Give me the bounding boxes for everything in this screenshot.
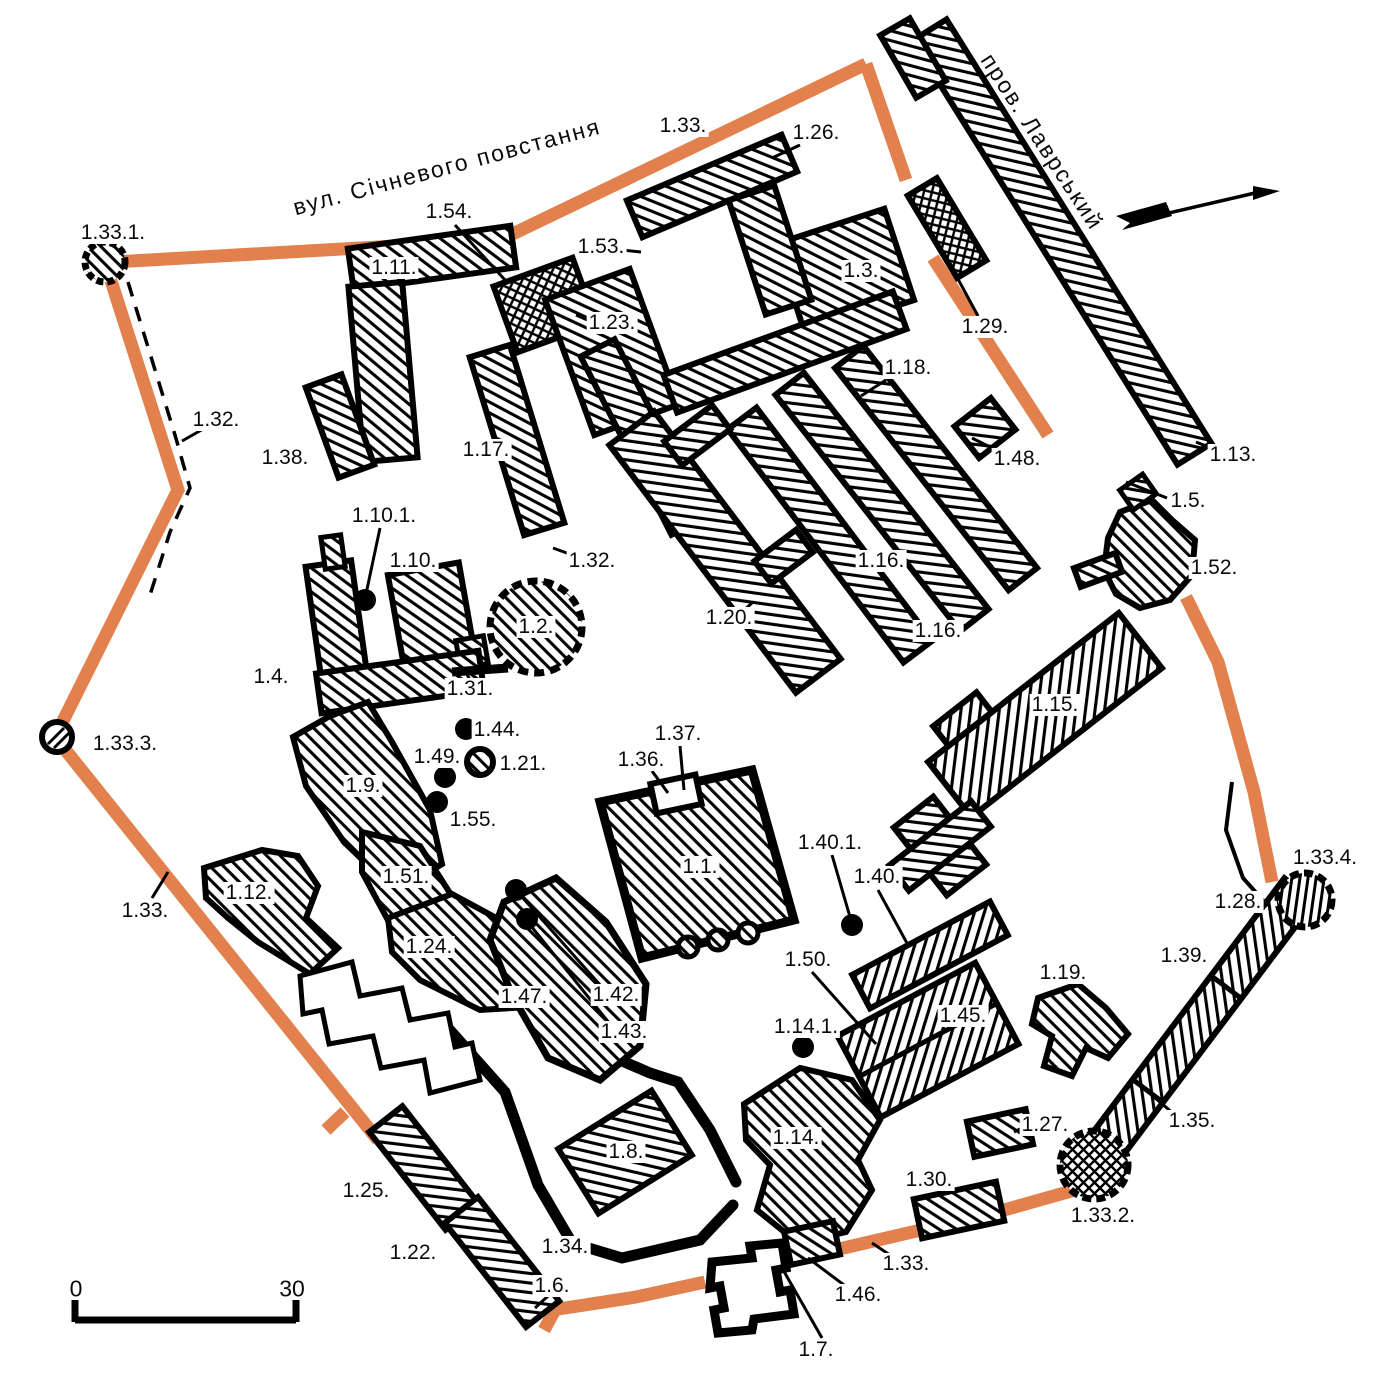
map-label-1-46: 1.46. (833, 1284, 884, 1306)
map-label-1-40-1: 1.40.1. (796, 832, 864, 854)
map-label-1-51: 1.51. (381, 866, 432, 888)
map-label-1-45: 1.45. (938, 1005, 989, 1027)
map-label-1-14-1: 1.14.1. (772, 1016, 840, 1038)
map-label-1-55: 1.55. (448, 809, 499, 831)
map-label-1-33: 1.33. (658, 115, 709, 137)
map-label-1-10-1: 1.10.1. (350, 505, 418, 527)
map-label-1-7: 1.7. (796, 1339, 835, 1361)
point-marker-1-42 (505, 879, 527, 901)
map-label-1-54: 1.54. (424, 201, 475, 223)
leader-line-1-40-1 (832, 855, 850, 917)
map-label-1-42: 1.42. (591, 984, 642, 1006)
map-label-1-15: 1.15. (1030, 694, 1081, 716)
map-label-1-27: 1.27. (1020, 1114, 1071, 1136)
map-label-1-14: 1.14. (771, 1127, 822, 1149)
map-label-1-16: 1.16. (913, 620, 964, 642)
building-1.29 (908, 178, 987, 278)
map-label-1-28: 1.28. (1213, 891, 1264, 913)
map-label-1-47: 1.47. (499, 986, 550, 1008)
map-label-1-5: 1.5. (1168, 490, 1207, 512)
scale-start-label: 0 (70, 1276, 83, 1303)
wall-south-west (552, 1282, 705, 1310)
map-label-1-33-2: 1.33.2. (1069, 1205, 1137, 1227)
map-label-1-9: 1.9. (343, 775, 382, 797)
map-label-1-19: 1.19. (1038, 962, 1089, 984)
map-label-1-44: 1.44. (472, 719, 523, 741)
map-label-1-53: 1.53. (576, 236, 627, 258)
map-label-1-32: 1.32. (567, 550, 618, 572)
point-marker-1-49 (434, 766, 456, 788)
map-label-1-21: 1.21. (498, 753, 549, 775)
map-label-1-33: 1.33. (881, 1253, 932, 1275)
map-label-1-33-1: 1.33.1. (79, 222, 147, 244)
map-label-1-31: 1.31. (445, 678, 496, 700)
map-label-1-39: 1.39. (1159, 945, 1210, 967)
map-label-1-24: 1.24. (404, 936, 455, 958)
map-label-1-25: 1.25. (341, 1180, 392, 1202)
site-plan-canvas (0, 0, 1378, 1393)
map-label-1-23: 1.23. (587, 312, 638, 334)
map-label-1-49: 1.49. (412, 746, 463, 768)
building-1.19 (1032, 984, 1128, 1076)
building-1.47 (490, 878, 646, 1080)
wall-east-upper (866, 64, 906, 180)
tower-1.33.1 (85, 242, 125, 282)
map-label-1-12: 1.12. (224, 882, 275, 904)
map-label-1-33-3: 1.33.3. (91, 733, 159, 755)
point-marker-1-10-1 (354, 589, 376, 611)
map-label-1-38: 1.38. (260, 447, 311, 469)
map-label-1-52: 1.52. (1189, 557, 1240, 579)
map-label-1-10: 1.10. (388, 550, 439, 572)
point-marker-1-40-1 (841, 914, 863, 936)
map-label-1-33: 1.33. (120, 900, 171, 922)
tower-1.33.4 (1278, 873, 1332, 927)
map-label-1-2: 1.2. (516, 616, 555, 638)
point-marker-1-14-1 (792, 1036, 814, 1058)
map-label-1-48: 1.48. (992, 448, 1043, 470)
map-label-1-43: 1.43. (599, 1021, 650, 1043)
map-label-1-36: 1.36. (616, 749, 667, 771)
map-label-1-13: 1.13. (1208, 444, 1259, 466)
map-label-1-17: 1.17. (461, 439, 512, 461)
point-marker-1-43 (516, 908, 538, 930)
map-label-1-8: 1.8. (606, 1141, 645, 1163)
rotunda-marker-1-21 (467, 749, 493, 775)
map-label-1-18: 1.18. (883, 357, 934, 379)
map-label-1-1: 1.1. (680, 856, 719, 878)
tower-1.33.3 (42, 722, 72, 752)
map-label-1-6: 1.6. (532, 1275, 571, 1297)
building-1.46 (784, 1221, 840, 1265)
map-label-1-34: 1.34. (540, 1236, 591, 1258)
map-label-1-4: 1.4. (251, 666, 290, 688)
map-label-1-30: 1.30. (904, 1169, 955, 1191)
scale-end-label: 30 (279, 1276, 305, 1303)
scale-bar (75, 1300, 296, 1322)
building-1.4-stub (321, 535, 345, 569)
tower-1.33.2 (1060, 1131, 1128, 1199)
gate-church-1.7 (710, 1243, 794, 1333)
map-label-1-33-4: 1.33.4. (1291, 847, 1359, 869)
map-label-1-11: 1.11. (369, 257, 418, 279)
map-label-1-16: 1.16. (856, 550, 907, 572)
building-1.22 (445, 1197, 559, 1327)
leader-line-1-10-1 (366, 528, 380, 594)
leader-line-1-40 (878, 890, 908, 945)
map-label-1-37: 1.37. (653, 723, 704, 745)
map-label-1-35: 1.35. (1167, 1110, 1218, 1132)
site-plan: вул. Січневого повстанняпров. Лаврський … (0, 0, 1378, 1393)
north-arrow-icon (1116, 186, 1280, 230)
map-label-1-40: 1.40. (852, 866, 903, 888)
map-label-1-32: 1.32. (191, 409, 242, 431)
connector-1.31 (452, 668, 508, 672)
map-label-1-22: 1.22. (388, 1242, 439, 1264)
point-marker-1-55 (426, 791, 448, 813)
map-label-1-50: 1.50. (783, 949, 834, 971)
map-label-1-20: 1.20. (704, 607, 755, 629)
wall-tick-a (326, 1112, 345, 1130)
map-label-1-29: 1.29. (960, 316, 1011, 338)
building-1.14 (744, 1068, 880, 1243)
map-label-1-3: 1.3. (841, 260, 880, 282)
map-label-1-26: 1.26. (791, 122, 842, 144)
